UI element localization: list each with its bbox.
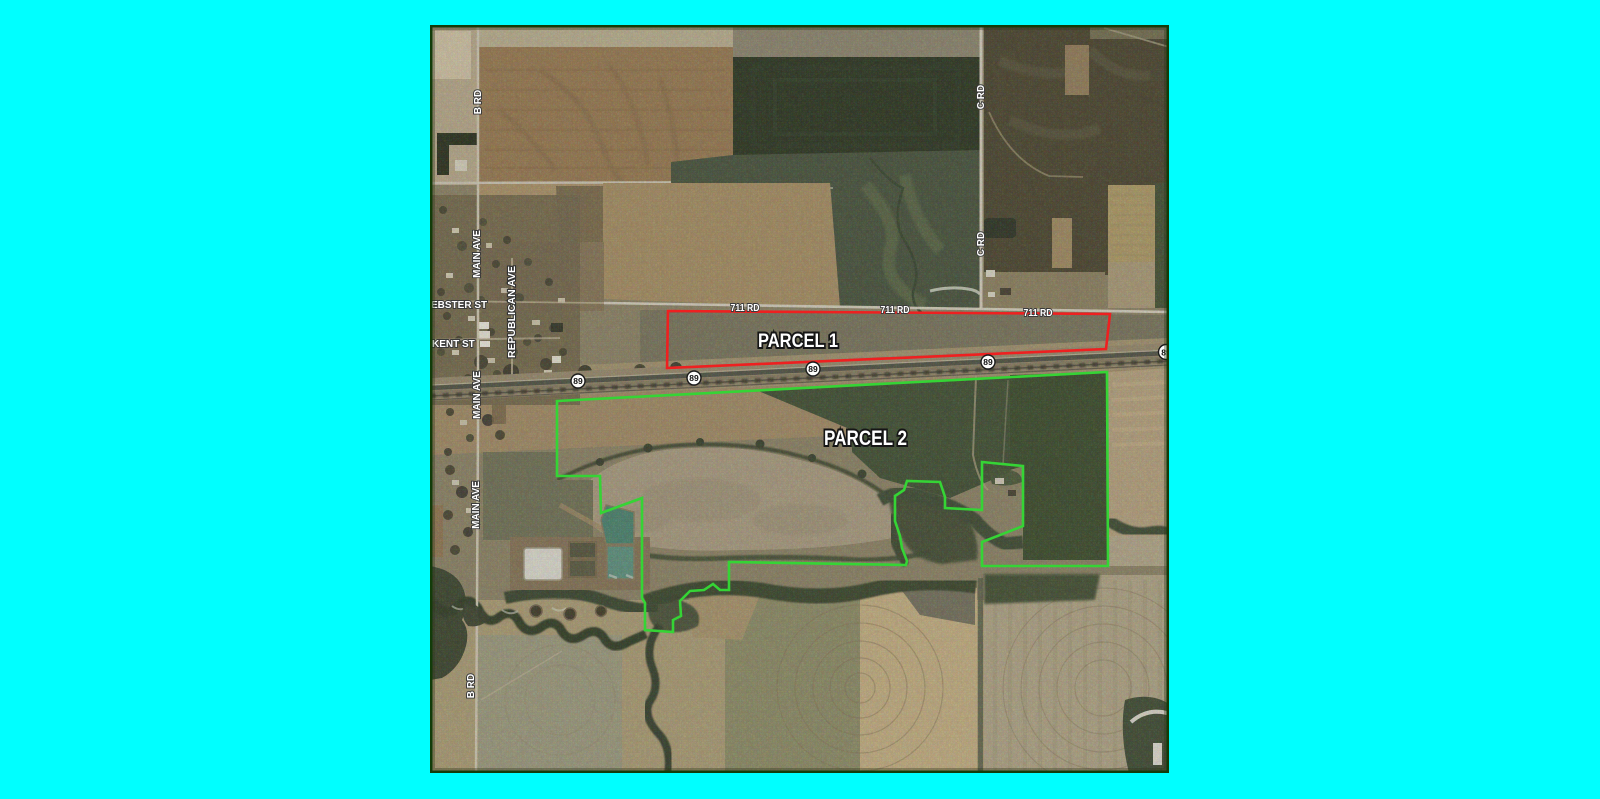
svg-text:89: 89 xyxy=(573,376,583,386)
svg-text:B RD: B RD xyxy=(473,90,484,114)
svg-text:711 RD: 711 RD xyxy=(731,303,760,314)
svg-text:MAIN AVE: MAIN AVE xyxy=(472,371,483,419)
svg-text:MAIN AVE: MAIN AVE xyxy=(472,230,483,278)
svg-text:89: 89 xyxy=(808,364,818,374)
svg-text:PARCEL 2: PARCEL 2 xyxy=(824,427,907,450)
svg-text:MAIN AVE: MAIN AVE xyxy=(471,481,482,529)
svg-text:EBSTER ST: EBSTER ST xyxy=(431,300,487,311)
svg-text:711 RD: 711 RD xyxy=(881,305,910,316)
svg-text:B RD: B RD xyxy=(466,674,477,698)
svg-text:PARCEL 1: PARCEL 1 xyxy=(758,330,838,352)
svg-text:C RD: C RD xyxy=(976,232,987,256)
svg-text:REPUBLICAN AVE: REPUBLICAN AVE xyxy=(507,266,518,358)
svg-text:89: 89 xyxy=(983,357,993,367)
svg-text:C RD: C RD xyxy=(976,85,987,109)
svg-text:711 RD: 711 RD xyxy=(1024,308,1053,319)
svg-text:KENT ST: KENT ST xyxy=(432,339,475,350)
svg-text:89: 89 xyxy=(689,373,699,383)
